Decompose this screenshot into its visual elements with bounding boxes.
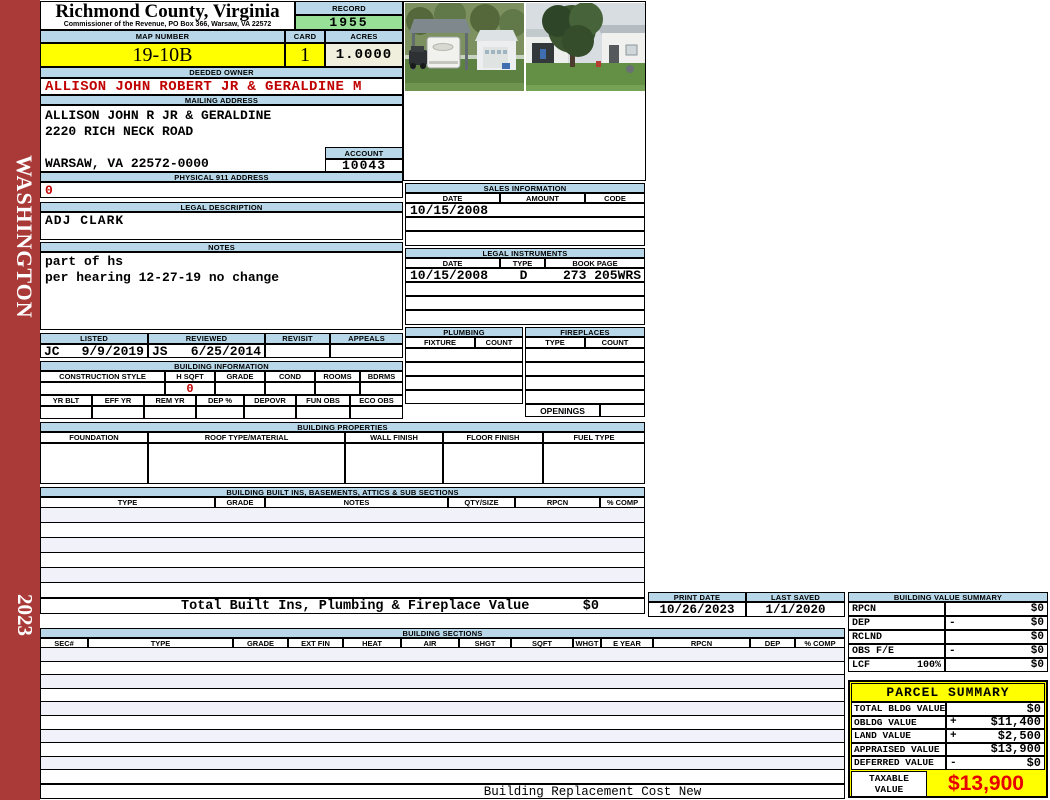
ps-op: + (950, 716, 957, 728)
year-sidebar (0, 0, 40, 800)
bs-col-whgt: WHGT (573, 638, 601, 648)
plumbing-row (405, 390, 523, 404)
bi-col-notes: NOTES (265, 497, 448, 508)
bvs-row-dep: DEP -$0 (848, 616, 1048, 630)
garage-yard-tree-photo (526, 3, 645, 91)
county-header-box: Richmond County, Virginia Commissioner o… (40, 1, 295, 30)
footer-note: Building Replacement Cost New (484, 785, 702, 799)
card-value: 1 (285, 43, 325, 67)
dep-pct-value (196, 406, 244, 419)
fun-obs-value (296, 406, 350, 419)
record-label: RECORD (295, 1, 403, 15)
col-rem-yr: REM YR (144, 395, 196, 406)
ps-row-deferred: DEFERRED VALUE -$0 (851, 756, 1045, 770)
bs-col-shgt: SHGT (459, 638, 511, 648)
taxable-label-line1: TAXABLE (869, 773, 909, 784)
ps-row-land: LAND VALUE +$2,500 (851, 729, 1045, 743)
col-rooms: ROOMS (315, 371, 360, 382)
plumbing-row (405, 376, 523, 390)
empty-row (41, 743, 844, 757)
fireplaces-row (525, 376, 645, 390)
empty-row (41, 702, 844, 716)
construction-style-value (40, 382, 165, 395)
li-col-type: TYPE (500, 258, 545, 268)
appeals-label: APPEALS (330, 333, 403, 344)
built-ins-title: BUILDING BUILT INS, BASEMENTS, ATTICS & … (40, 487, 645, 497)
bvs-op: - (949, 617, 956, 629)
empty-row (41, 553, 644, 568)
bdrms-value (360, 382, 403, 395)
bp-fuel-value (543, 443, 645, 484)
county-title: Richmond County, Virginia (41, 2, 294, 21)
bp-wall-value (345, 443, 443, 484)
bs-col-air: AIR (401, 638, 459, 648)
plumbing-col-fixture: FIXTURE (405, 337, 475, 348)
empty-row (41, 568, 644, 583)
eco-obs-value (350, 406, 403, 419)
bvs-row-rclnd: RCLND $0 (848, 630, 1048, 644)
footer-note-row: Building Replacement Cost New (40, 784, 845, 799)
bs-col-grade: GRADE (233, 638, 288, 648)
bp-col-roof: ROOF TYPE/MATERIAL (148, 432, 345, 443)
acres-value: 1.0000 (325, 43, 403, 67)
li-type: D (501, 268, 546, 283)
mailing-line-2: 2220 RICH NECK ROAD (41, 124, 402, 140)
acres-label: ACRES (325, 30, 403, 43)
empty-row (41, 662, 844, 676)
col-eco-obs: ECO OBS (350, 395, 403, 406)
deeded-owner-label: DEEDED OWNER (40, 67, 403, 78)
bs-col-sec: SEC# (40, 638, 88, 648)
reviewed-by: JS (152, 344, 168, 359)
taxable-value-label: TAXABLE VALUE (851, 771, 927, 797)
revisit-label: REVISIT (265, 333, 330, 344)
reviewed-label: REVIEWED (148, 333, 265, 344)
legal-description-label: LEGAL DESCRIPTION (40, 202, 403, 212)
ps-amount: $0 (1027, 756, 1041, 770)
carport-with-rv-photo (405, 3, 524, 91)
sales-information-title: SALES INFORMATION (405, 183, 645, 193)
building-sections-header-row: SEC# TYPE GRADE EXT FIN HEAT AIR SHGT SQ… (40, 638, 845, 648)
fireplaces-row (525, 348, 645, 362)
bs-col-comp: % COMP (795, 638, 845, 648)
built-ins-empty-rows (40, 508, 645, 598)
rem-yr-value (144, 406, 196, 419)
li-col-date: DATE (405, 258, 500, 268)
taxable-value: $13,900 (927, 772, 1045, 796)
col-bdrms: BDRMS (360, 371, 403, 382)
bvs-amount: $0 (1031, 617, 1044, 629)
empty-row (41, 689, 844, 703)
sales-col-code: CODE (585, 193, 645, 203)
plumbing-col-count: COUNT (475, 337, 523, 348)
li-col-bookpage: BOOK PAGE (545, 258, 645, 268)
sales-col-amount: AMOUNT (500, 193, 585, 203)
bvs-amount: $0 (1031, 631, 1044, 643)
bvs-label: RCLND (852, 632, 882, 643)
eff-yr-value (92, 406, 144, 419)
bs-col-sqft: SQFT (511, 638, 573, 648)
taxable-label-line2: VALUE (875, 784, 904, 795)
ps-taxable-row: TAXABLE VALUE $13,900 (851, 771, 1045, 797)
col-depovr: DEPOVR (244, 395, 296, 406)
bp-col-fuel: FUEL TYPE (543, 432, 645, 443)
legal-instrument-row (405, 296, 645, 310)
bi-col-qtysize: QTY/SIZE (448, 497, 515, 508)
record-value: 1955 (295, 15, 403, 30)
revisit-value (265, 344, 330, 358)
photo-panel (403, 1, 646, 181)
notes-box: part of hs per hearing 12-27-19 no chang… (40, 252, 403, 330)
legal-instruments-title: LEGAL INSTRUMENTS (405, 248, 645, 258)
last-saved-value: 1/1/2020 (746, 602, 845, 617)
ps-amount: $0 (1027, 702, 1041, 716)
sidebar-state-label: WASHINGTON (5, 132, 37, 342)
bs-col-heat: HEAT (343, 638, 401, 648)
notes-line-2: per hearing 12-27-19 no change (41, 270, 402, 286)
commissioner-line: Commissioner of the Revenue, PO Box 366,… (41, 21, 294, 28)
bs-col-extfin: EXT FIN (288, 638, 343, 648)
depovr-value (244, 406, 296, 419)
account-value: 10043 (325, 159, 403, 172)
cond-value (265, 382, 315, 395)
bvs-amount: $0 (1031, 603, 1044, 615)
ps-op: + (950, 730, 957, 742)
bvs-label: LCF (852, 660, 870, 671)
ps-amount: $2,500 (998, 729, 1041, 743)
ps-label: APPRAISED VALUE (851, 743, 946, 757)
grade-value (215, 382, 265, 395)
bp-col-foundation: FOUNDATION (40, 432, 148, 443)
listed-by: JC (44, 344, 60, 359)
appeals-value (330, 344, 403, 358)
bvs-pct: 100% (917, 660, 941, 671)
bp-col-floor: FLOOR FINISH (443, 432, 543, 443)
bi-col-comp: % COMP (600, 497, 645, 508)
col-fun-obs: FUN OBS (296, 395, 350, 406)
sales-row (405, 231, 645, 246)
sales-row: 10/15/2008 (405, 203, 645, 217)
plumbing-row (405, 348, 523, 362)
sales-row (405, 217, 645, 231)
mailing-line-1: ALLISON JOHN R JR & GERALDINE (41, 108, 402, 124)
bvs-amount: $0 (1031, 659, 1044, 671)
empty-row (41, 770, 844, 784)
plumbing-title: PLUMBING (405, 327, 523, 337)
li-date: 10/15/2008 (406, 268, 501, 283)
empty-row (41, 523, 644, 538)
fireplaces-row (525, 362, 645, 376)
reviewed-date: 6/25/2014 (191, 344, 261, 359)
ps-label: TOTAL BLDG VALUE (851, 702, 946, 716)
plumbing-row (405, 362, 523, 376)
sidebar-year-label: 2023 (5, 580, 37, 650)
physical-911-value: 0 (40, 182, 403, 198)
empty-row (41, 508, 644, 523)
bvs-label: DEP (852, 618, 870, 629)
rooms-value (315, 382, 360, 395)
li-bookpage: 273 205WRS (546, 268, 644, 283)
ps-row-obldg: OBLDG VALUE +$11,400 (851, 716, 1045, 730)
bs-col-rpcn: RPCN (653, 638, 750, 648)
col-construction-style: CONSTRUCTION STYLE (40, 371, 165, 382)
parcel-summary: PARCEL SUMMARY TOTAL BLDG VALUE $0 OBLDG… (848, 680, 1048, 798)
ps-label: DEFERRED VALUE (851, 756, 946, 770)
listed-date: 9/9/2019 (82, 344, 144, 359)
empty-row (41, 716, 844, 730)
empty-row (41, 538, 644, 553)
sales-col-date: DATE (405, 193, 500, 203)
fireplaces-title: FIREPLACES (525, 327, 645, 337)
bvs-amount: $0 (1031, 645, 1044, 657)
ps-label: LAND VALUE (851, 729, 946, 743)
legal-instrument-row (405, 282, 645, 296)
print-date-label: PRINT DATE (648, 592, 746, 602)
empty-row (41, 675, 844, 689)
reviewed-value: JS6/25/2014 (148, 344, 265, 358)
col-yr-blt: YR BLT (40, 395, 92, 406)
built-ins-total-label: Total Built Ins, Plumbing & Fireplace Va… (181, 599, 529, 614)
listed-value: JC9/9/2019 (40, 344, 148, 358)
last-saved-label: LAST SAVED (746, 592, 845, 602)
bp-floor-value (443, 443, 543, 484)
built-ins-total-row: Total Built Ins, Plumbing & Fireplace Va… (40, 598, 645, 614)
building-properties-title: BUILDING PROPERTIES (40, 422, 645, 432)
fireplaces-row (525, 390, 645, 404)
print-date-value: 10/26/2023 (648, 602, 746, 617)
ps-amount: $13,900 (991, 742, 1041, 756)
bs-col-eyear: E YEAR (601, 638, 653, 648)
map-number-value: 19-10B (40, 43, 285, 67)
hsqft-value: 0 (165, 382, 215, 395)
empty-row (41, 730, 844, 744)
legal-description-value: ADJ CLARK (40, 212, 403, 240)
empty-row (41, 648, 844, 662)
col-hsqft: H SQFT (165, 371, 215, 382)
empty-row (41, 583, 644, 598)
openings-value (600, 404, 645, 417)
listed-label: LISTED (40, 333, 148, 344)
notes-label: NOTES (40, 242, 403, 252)
bs-col-type: TYPE (88, 638, 233, 648)
col-eff-yr: EFF YR (92, 395, 144, 406)
bp-col-wall: WALL FINISH (345, 432, 443, 443)
bi-col-rpcn: RPCN (515, 497, 600, 508)
notes-line-1: part of hs (41, 254, 402, 270)
col-grade: GRADE (215, 371, 265, 382)
bi-col-type: TYPE (40, 497, 215, 508)
parcel-summary-title: PARCEL SUMMARY (851, 683, 1045, 702)
physical-911-label: PHYSICAL 911 ADDRESS (40, 172, 403, 182)
fireplaces-col-type: TYPE (525, 337, 585, 348)
bvs-op: - (949, 645, 956, 657)
ps-amount: $11,400 (991, 715, 1041, 729)
legal-instrument-row (405, 310, 645, 325)
bi-col-grade: GRADE (215, 497, 265, 508)
built-ins-total-value: $0 (583, 599, 599, 614)
bvs-row-obs-fe: OBS F/E -$0 (848, 644, 1048, 658)
yr-blt-value (40, 406, 92, 419)
bvs-row-lcf: LCF100% $0 (848, 658, 1048, 672)
bvs-label: OBS F/E (852, 646, 894, 657)
ps-op: - (950, 757, 957, 769)
bp-foundation-value (40, 443, 148, 484)
ps-label: OBLDG VALUE (851, 716, 946, 730)
bp-roof-value (148, 443, 345, 484)
empty-row (41, 757, 844, 771)
col-dep-pct: DEP % (196, 395, 244, 406)
building-information-title: BUILDING INFORMATION (40, 361, 403, 371)
bvs-row-rpcn: RPCN $0 (848, 602, 1048, 616)
mailing-address-label: MAILING ADDRESS (40, 95, 403, 105)
fireplaces-col-count: COUNT (585, 337, 645, 348)
openings-label: OPENINGS (525, 404, 600, 417)
building-value-summary-title: BUILDING VALUE SUMMARY (848, 592, 1048, 602)
col-cond: COND (265, 371, 315, 382)
ps-row-total-bldg: TOTAL BLDG VALUE $0 (851, 702, 1045, 716)
bs-col-dep: DEP (750, 638, 795, 648)
ps-row-appraised: APPRAISED VALUE $13,900 (851, 743, 1045, 757)
bvs-label: RPCN (852, 604, 876, 615)
building-sections-empty-rows (40, 648, 845, 784)
deeded-owner-value: ALLISON JOHN ROBERT JR & GERALDINE M (40, 78, 403, 95)
building-sections-title: BUILDING SECTIONS (40, 628, 845, 638)
legal-instrument-row: 10/15/2008 D 273 205WRS (405, 268, 645, 282)
card-label: CARD (285, 30, 325, 43)
map-number-label: MAP NUMBER (40, 30, 285, 43)
